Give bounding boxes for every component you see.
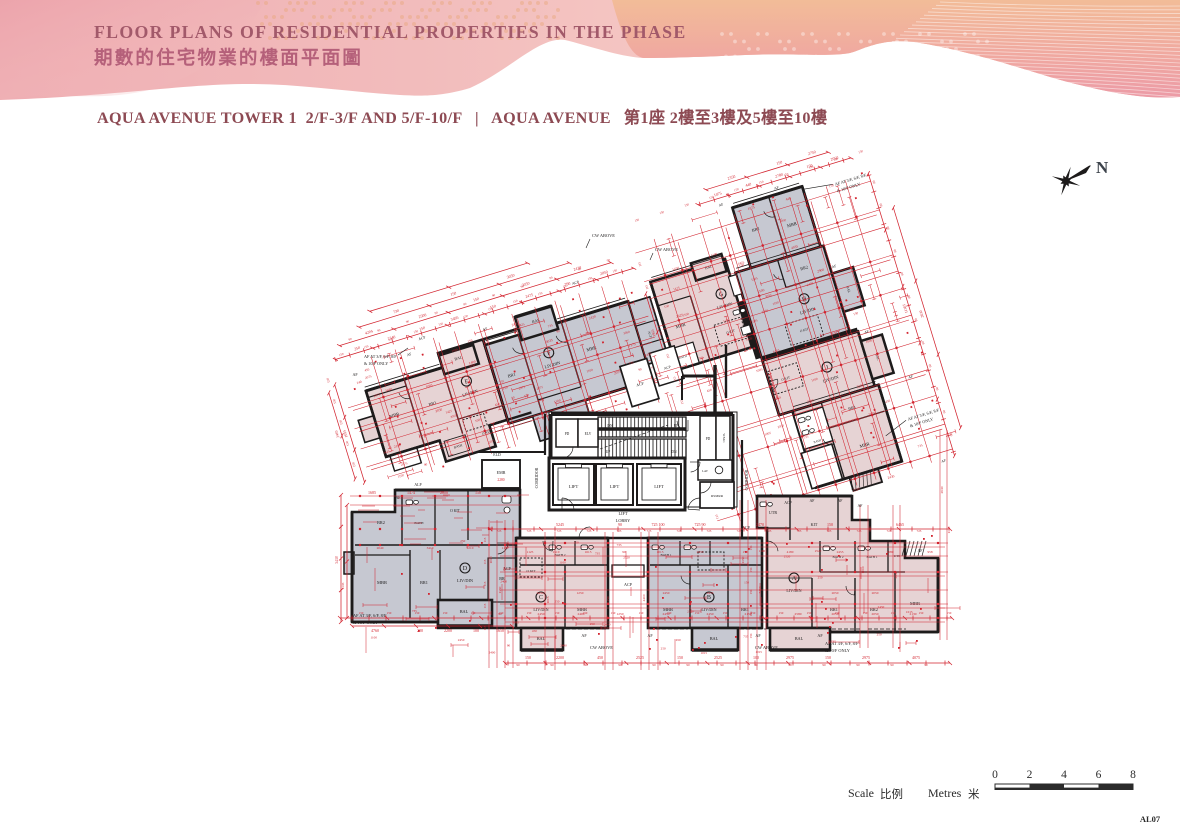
svg-text:& 10/F ONLY: & 10/F ONLY	[364, 361, 388, 366]
svg-text:2525: 2525	[714, 655, 722, 660]
svg-text:LIFT: LIFT	[610, 484, 620, 489]
svg-text:2050: 2050	[872, 591, 879, 595]
svg-text:1130: 1130	[947, 526, 951, 533]
svg-text:1015: 1015	[700, 651, 707, 655]
svg-text:90: 90	[652, 663, 656, 667]
svg-text:735: 735	[831, 640, 836, 644]
svg-text:Scale: Scale	[848, 786, 874, 800]
svg-text:90: 90	[622, 550, 626, 554]
svg-text:2400: 2400	[560, 643, 567, 647]
svg-text:RSMRR: RSMRR	[711, 494, 724, 498]
svg-text:1100: 1100	[502, 546, 509, 550]
svg-text:BAL: BAL	[460, 609, 469, 614]
svg-text:2: 2	[1027, 769, 1033, 781]
svg-text:250: 250	[590, 622, 595, 626]
svg-text:CW ABOVE: CW ABOVE	[590, 645, 613, 650]
svg-text:1250: 1250	[617, 612, 624, 616]
svg-text:150: 150	[475, 490, 481, 495]
svg-text:150: 150	[891, 611, 896, 615]
svg-text:ALP: ALP	[414, 483, 421, 487]
svg-text:LIFT: LIFT	[569, 484, 579, 489]
svg-text:90: 90	[584, 663, 588, 667]
svg-text:725: 725	[797, 529, 802, 533]
svg-text:3410: 3410	[335, 556, 339, 564]
svg-text:LIV/DIN: LIV/DIN	[786, 588, 801, 593]
svg-text:0: 0	[992, 769, 998, 781]
svg-text:1015: 1015	[657, 550, 664, 554]
svg-text:150: 150	[744, 580, 749, 584]
svg-text:90: 90	[890, 663, 894, 667]
svg-text:4760: 4760	[371, 628, 379, 633]
svg-text:1135: 1135	[341, 582, 345, 589]
svg-text:2200: 2200	[444, 628, 452, 633]
svg-text:2520: 2520	[784, 555, 791, 559]
svg-text:2050: 2050	[872, 612, 879, 616]
svg-text:735: 735	[743, 634, 748, 638]
svg-text:725: 725	[557, 529, 562, 533]
svg-text:1474: 1474	[407, 490, 415, 495]
svg-text:2975: 2975	[862, 655, 870, 660]
svg-text:8: 8	[1130, 769, 1136, 781]
svg-text:250: 250	[818, 576, 823, 580]
svg-text:2450: 2450	[538, 612, 545, 616]
svg-text:CW ABOVE: CW ABOVE	[655, 247, 678, 252]
svg-text:CORRIDOR: CORRIDOR	[534, 467, 539, 488]
svg-text:BAL: BAL	[710, 636, 719, 641]
svg-text:MBR: MBR	[377, 580, 387, 585]
svg-text:90: 90	[618, 663, 622, 667]
svg-text:150: 150	[527, 611, 532, 615]
svg-text:725: 725	[587, 529, 592, 533]
svg-text:2400: 2400	[489, 650, 496, 654]
svg-text:100: 100	[473, 628, 479, 633]
svg-text:O KIT: O KIT	[450, 509, 460, 513]
svg-text:D: D	[463, 565, 468, 572]
svg-text:BR1: BR1	[420, 580, 428, 585]
svg-text:2400: 2400	[500, 580, 507, 584]
svg-text:C: C	[539, 594, 543, 601]
svg-text:期數的住宅物業的樓面平面圖: 期數的住宅物業的樓面平面圖	[94, 47, 363, 69]
svg-text:150: 150	[695, 611, 700, 615]
svg-text:450: 450	[597, 655, 603, 660]
svg-text:250: 250	[460, 539, 465, 543]
svg-text:ACP: ACP	[742, 526, 750, 530]
svg-text:90: 90	[856, 663, 860, 667]
svg-text:2450: 2450	[537, 591, 544, 595]
svg-text:比例: 比例	[880, 787, 903, 801]
svg-text:AF: AF	[858, 504, 864, 508]
svg-text:AF: AF	[817, 633, 823, 638]
svg-text:725: 725	[857, 529, 862, 533]
svg-text:2008: 2008	[440, 490, 448, 495]
svg-text:90: 90	[822, 663, 826, 667]
svg-text:1010: 1010	[489, 556, 493, 563]
svg-text:1615: 1615	[585, 550, 592, 554]
svg-text:N: N	[1096, 158, 1109, 177]
svg-text:1015: 1015	[755, 650, 762, 654]
svg-text:ACP: ACP	[784, 501, 792, 505]
svg-text:AF: AF	[918, 549, 924, 553]
svg-text:1100: 1100	[371, 636, 378, 640]
svg-text:958: 958	[927, 550, 932, 554]
svg-text:ELD: ELD	[493, 453, 501, 457]
svg-text:CW ABOVE: CW ABOVE	[592, 233, 615, 238]
svg-text:FLOOR PLANS OF RESIDENTIAL PRO: FLOOR PLANS OF RESIDENTIAL PROPERTIES IN…	[94, 22, 687, 42]
svg-text:LIV/DIN: LIV/DIN	[457, 578, 473, 583]
svg-text:450: 450	[676, 638, 681, 642]
svg-text:725: 725	[497, 529, 502, 533]
svg-text:150: 150	[825, 655, 831, 660]
svg-text:AQUA AVENUE TOWER 1 2/F-3/F A: AQUA AVENUE TOWER 1 2/F-3/F AND 5/F-10/F…	[97, 108, 827, 127]
svg-text:150: 150	[387, 611, 392, 615]
svg-text:4075: 4075	[912, 655, 920, 660]
svg-text:150: 150	[359, 611, 364, 615]
svg-text:4410: 4410	[642, 594, 646, 601]
svg-text:3410: 3410	[427, 546, 434, 550]
svg-text:6: 6	[1096, 769, 1102, 781]
svg-text:150: 150	[555, 611, 560, 615]
svg-text:100: 100	[753, 655, 759, 660]
svg-text:DN: DN	[671, 450, 677, 454]
svg-text:115: 115	[483, 559, 487, 564]
svg-text:2210: 2210	[467, 546, 474, 550]
svg-text:150: 150	[749, 611, 753, 616]
svg-text:AF: AF	[755, 633, 761, 638]
svg-text:BAL: BAL	[795, 636, 804, 641]
svg-text:& 10/F ONLY: & 10/F ONLY	[353, 620, 378, 625]
svg-text:2450: 2450	[458, 638, 465, 642]
svg-text:250: 250	[554, 599, 559, 603]
svg-text:2050: 2050	[832, 591, 839, 595]
svg-text:2630: 2630	[940, 486, 944, 493]
svg-text:2280: 2280	[497, 478, 504, 482]
svg-text:150: 150	[611, 611, 616, 615]
svg-text:UTR: UTR	[769, 510, 777, 515]
svg-text:4: 4	[1061, 769, 1067, 781]
svg-text:90: 90	[507, 644, 511, 648]
svg-text:150: 150	[574, 541, 579, 545]
svg-text:B: B	[707, 594, 711, 601]
svg-text:250: 250	[877, 633, 882, 637]
svg-text:150: 150	[583, 611, 588, 615]
svg-text:& 10/F ONLY: & 10/F ONLY	[825, 648, 850, 653]
svg-text:150: 150	[863, 611, 868, 615]
svg-text:4180: 4180	[787, 550, 794, 554]
svg-text:2455: 2455	[707, 591, 714, 595]
svg-text:150: 150	[667, 611, 672, 615]
svg-text:5245: 5245	[556, 522, 564, 527]
svg-text:115: 115	[483, 603, 487, 608]
svg-text:725: 725	[647, 529, 652, 533]
svg-text:2520: 2520	[687, 610, 694, 614]
svg-text:2450: 2450	[878, 605, 885, 609]
svg-text:2520: 2520	[623, 555, 630, 559]
svg-text:725: 725	[827, 529, 832, 533]
svg-text:EMR: EMR	[497, 470, 506, 475]
svg-text:1015: 1015	[546, 596, 550, 603]
svg-text:725: 725	[617, 529, 622, 533]
svg-text:90: 90	[788, 663, 792, 667]
svg-text:450: 450	[532, 629, 537, 633]
svg-text:725: 725	[707, 529, 712, 533]
svg-text:LAV: LAV	[702, 469, 709, 473]
svg-text:米: 米	[968, 788, 980, 801]
svg-text:2455: 2455	[697, 550, 704, 554]
svg-text:AF: AF	[352, 372, 358, 377]
svg-text:1100: 1100	[559, 561, 566, 565]
svg-text:1015: 1015	[906, 610, 913, 614]
svg-text:LIFT: LIFT	[654, 484, 664, 489]
svg-text:1015: 1015	[513, 620, 520, 624]
svg-text:150: 150	[749, 633, 753, 638]
svg-text:2520: 2520	[815, 549, 822, 553]
svg-text:150: 150	[723, 611, 728, 615]
svg-text:Metres: Metres	[928, 786, 962, 800]
svg-text:90: 90	[720, 663, 724, 667]
svg-text:150: 150	[779, 611, 784, 615]
svg-text:BR2: BR2	[377, 520, 385, 525]
svg-text:W.M.C: W.M.C	[722, 433, 726, 442]
svg-text:90: 90	[618, 522, 622, 527]
svg-text:2455: 2455	[837, 550, 844, 554]
svg-text:1510: 1510	[553, 550, 560, 554]
svg-text:90: 90	[550, 663, 554, 667]
svg-text:CORRIDOR: CORRIDOR	[744, 469, 749, 490]
svg-text:115: 115	[483, 581, 487, 586]
svg-text:MBR: MBR	[910, 601, 920, 606]
svg-text:AL07: AL07	[1140, 814, 1161, 824]
svg-text:1100: 1100	[759, 549, 766, 553]
svg-text:150: 150	[639, 611, 644, 615]
svg-text:2450: 2450	[707, 612, 714, 616]
svg-text:725: 725	[917, 529, 922, 533]
svg-text:LIFT: LIFT	[618, 511, 627, 516]
svg-text:725: 725	[527, 529, 532, 533]
svg-text:UP: UP	[606, 450, 611, 454]
svg-text:2580: 2580	[795, 612, 802, 616]
svg-text:735: 735	[595, 552, 600, 556]
svg-text:AF: AF	[647, 633, 653, 638]
svg-text:PD: PD	[565, 432, 570, 436]
svg-text:ACP: ACP	[624, 582, 633, 587]
svg-text:735: 735	[617, 543, 622, 547]
svg-text:1450: 1450	[606, 596, 610, 603]
svg-text:ELV: ELV	[585, 432, 592, 436]
svg-text:KIT: KIT	[811, 522, 818, 527]
svg-text:725 90: 725 90	[695, 522, 706, 527]
svg-text:150: 150	[749, 589, 753, 594]
svg-text:725: 725	[767, 529, 772, 533]
svg-text:150: 150	[919, 611, 924, 615]
svg-text:150: 150	[499, 611, 504, 615]
svg-text:150: 150	[443, 611, 448, 615]
svg-text:115: 115	[483, 537, 487, 542]
svg-text:DN: DN	[607, 424, 613, 428]
svg-text:725 100: 725 100	[652, 522, 665, 527]
svg-text:150: 150	[947, 611, 952, 615]
svg-text:1250: 1250	[577, 591, 584, 595]
svg-text:O KIT: O KIT	[526, 569, 536, 573]
svg-text:AF: AF	[838, 499, 844, 503]
svg-text:115: 115	[483, 625, 487, 630]
svg-text:AF: AF	[810, 499, 816, 503]
svg-text:2400: 2400	[604, 623, 611, 627]
svg-text:150: 150	[677, 655, 683, 660]
svg-text:725: 725	[737, 529, 742, 533]
svg-text:2400: 2400	[642, 574, 649, 578]
svg-text:90: 90	[516, 663, 520, 667]
svg-text:2450: 2450	[663, 591, 670, 595]
svg-text:90: 90	[686, 663, 690, 667]
svg-text:150: 150	[525, 655, 531, 660]
svg-text:150: 150	[827, 522, 833, 527]
svg-text:2200: 2200	[556, 655, 564, 660]
svg-text:250: 250	[661, 647, 666, 651]
svg-text:1125: 1125	[527, 550, 534, 554]
svg-text:2040: 2040	[377, 546, 384, 550]
svg-text:150: 150	[807, 611, 812, 615]
svg-text:1685: 1685	[368, 490, 376, 495]
svg-text:735: 735	[412, 609, 417, 613]
svg-text:2525: 2525	[636, 655, 644, 660]
svg-text:1150: 1150	[741, 556, 745, 563]
svg-text:AF: AF	[581, 633, 587, 638]
svg-text:PD: PD	[706, 437, 711, 441]
svg-text:150: 150	[749, 567, 753, 572]
svg-text:200: 200	[417, 628, 423, 633]
svg-text:1010: 1010	[861, 566, 865, 573]
svg-text:2975: 2975	[786, 655, 794, 660]
